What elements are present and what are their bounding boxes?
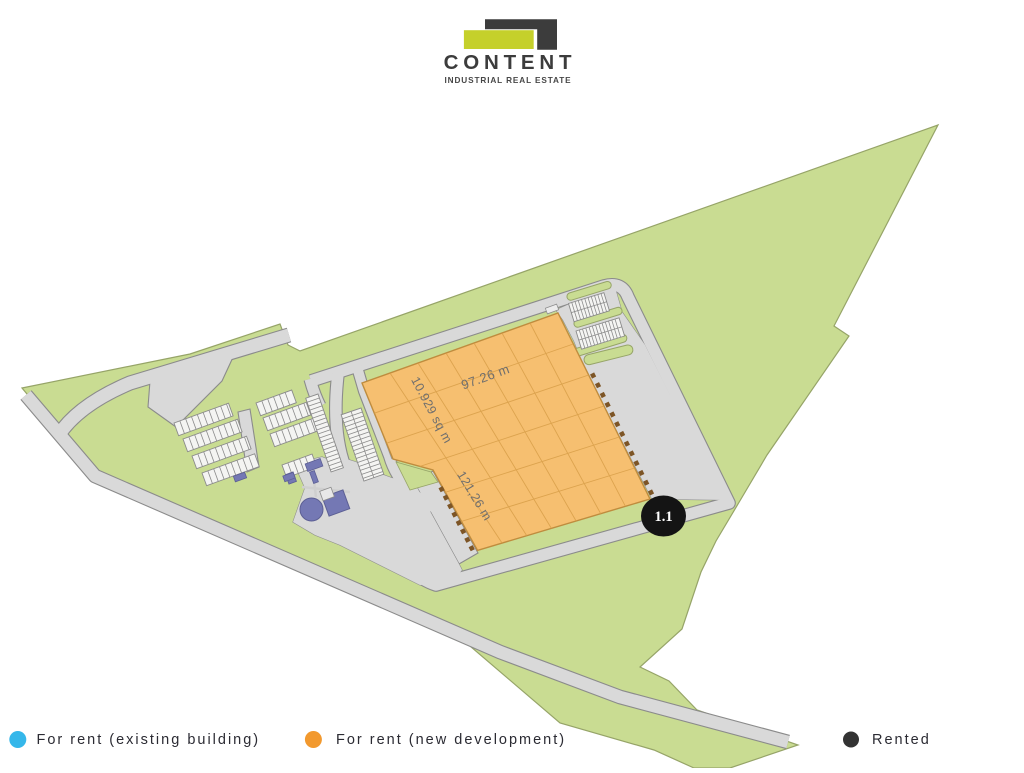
svg-text:CONTENT: CONTENT — [444, 51, 577, 74]
svg-text:Rented: Rented — [872, 732, 931, 748]
svg-text:INDUSTRIAL REAL ESTATE: INDUSTRIAL REAL ESTATE — [445, 76, 572, 85]
svg-text:1.1: 1.1 — [654, 509, 672, 525]
svg-text:For rent (existing building): For rent (existing building) — [37, 732, 261, 748]
svg-text:For rent (new development): For rent (new development) — [336, 732, 566, 748]
